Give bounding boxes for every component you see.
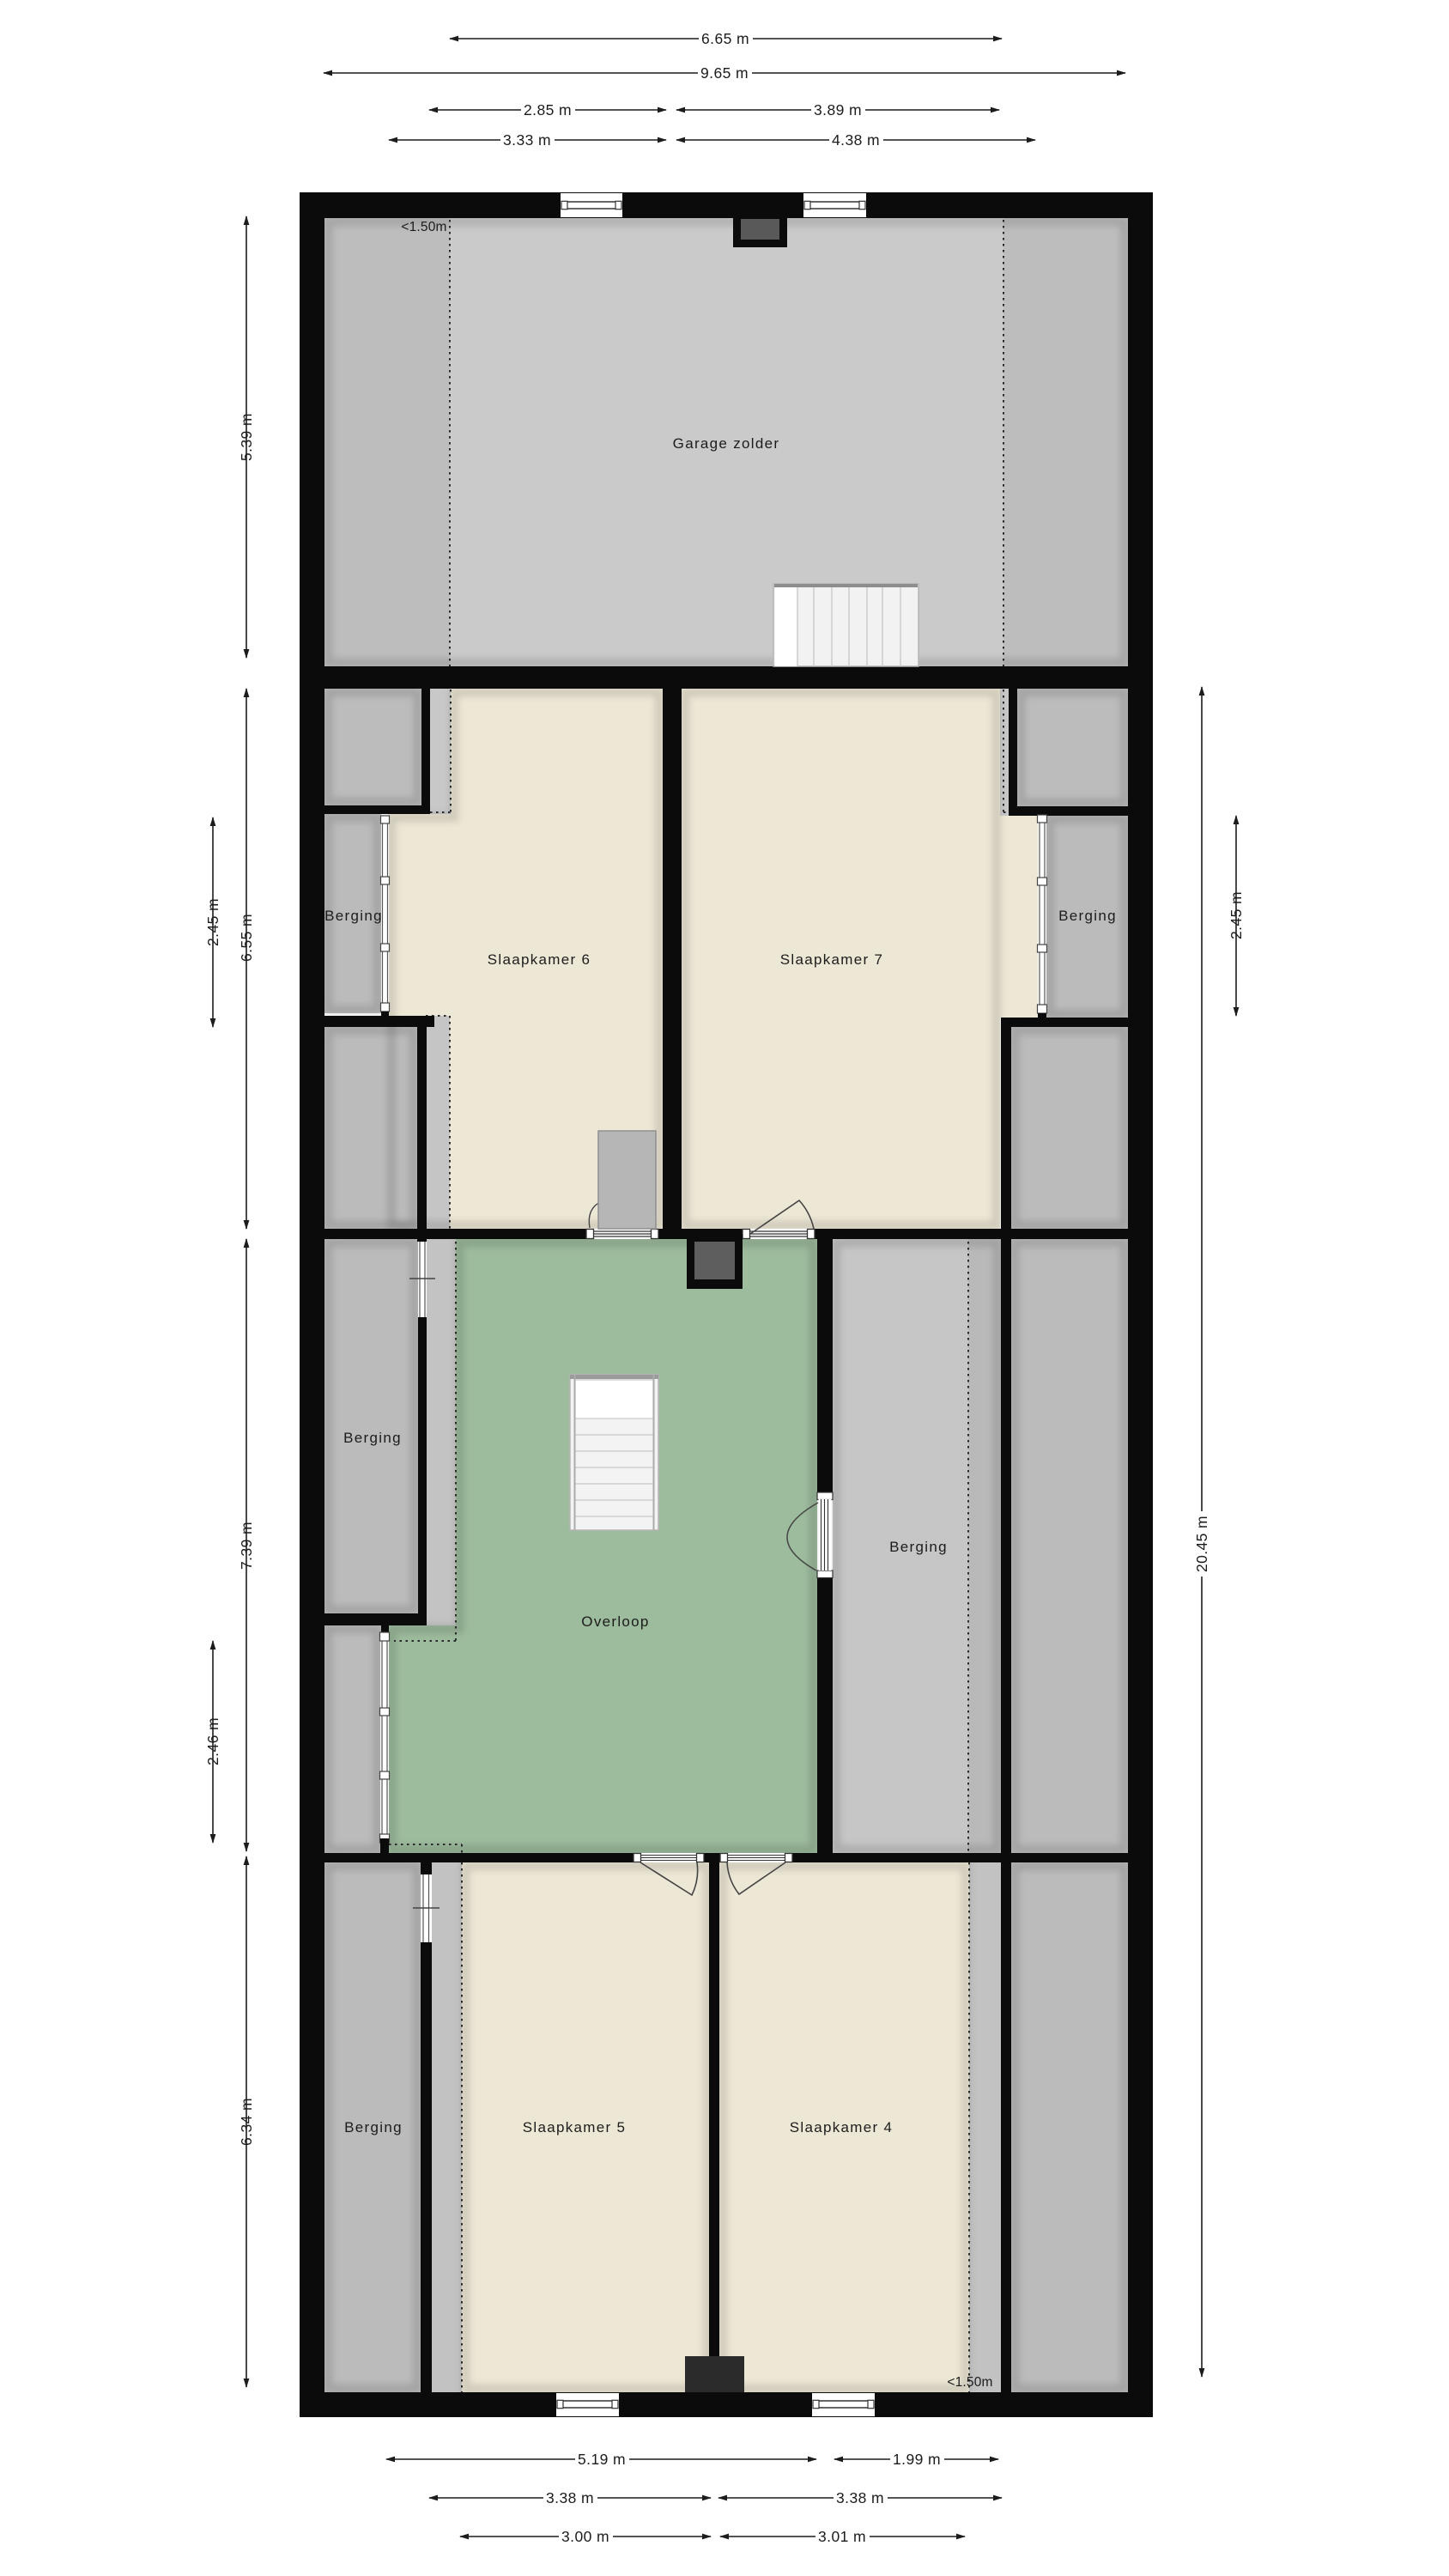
svg-text:Berging: Berging: [324, 908, 383, 924]
svg-text:6.34 m: 6.34 m: [238, 2098, 255, 2146]
svg-text:3.00 m: 3.00 m: [561, 2528, 609, 2545]
svg-text:7.39 m: 7.39 m: [238, 1522, 255, 1570]
svg-text:5.19 m: 5.19 m: [578, 2451, 626, 2468]
svg-text:<1.50m: <1.50m: [947, 2375, 992, 2390]
svg-text:6.65 m: 6.65 m: [701, 30, 749, 47]
svg-text:3.33 m: 3.33 m: [503, 131, 551, 149]
svg-text:Berging: Berging: [1058, 908, 1117, 924]
svg-text:Slaapkamer 7: Slaapkamer 7: [780, 951, 884, 968]
svg-text:3.38 m: 3.38 m: [546, 2489, 594, 2506]
svg-text:Slaapkamer 6: Slaapkamer 6: [488, 951, 591, 968]
svg-text:2.45 m: 2.45 m: [1228, 891, 1245, 939]
svg-text:Berging: Berging: [889, 1539, 948, 1555]
svg-text:2.85 m: 2.85 m: [524, 101, 572, 118]
svg-text:3.38 m: 3.38 m: [836, 2489, 884, 2506]
svg-text:Slaapkamer 4: Slaapkamer 4: [790, 2119, 894, 2136]
svg-text:9.65 m: 9.65 m: [700, 64, 749, 82]
svg-text:<1.50m: <1.50m: [401, 220, 446, 234]
svg-text:6.55 m: 6.55 m: [238, 914, 255, 962]
svg-text:3.01 m: 3.01 m: [818, 2528, 866, 2545]
svg-text:1.99 m: 1.99 m: [893, 2451, 941, 2468]
svg-text:4.38 m: 4.38 m: [832, 131, 880, 149]
svg-text:3.89 m: 3.89 m: [814, 101, 862, 118]
svg-text:2.45 m: 2.45 m: [204, 898, 221, 946]
svg-text:5.39 m: 5.39 m: [238, 413, 255, 461]
svg-text:Berging: Berging: [343, 1430, 402, 1446]
svg-text:Slaapkamer 5: Slaapkamer 5: [523, 2119, 627, 2136]
svg-text:Overloop: Overloop: [581, 1613, 649, 1630]
svg-text:Garage zolder: Garage zolder: [673, 435, 780, 452]
svg-text:20.45 m: 20.45 m: [1193, 1516, 1210, 1572]
svg-text:2.46 m: 2.46 m: [204, 1717, 221, 1765]
svg-text:Berging: Berging: [344, 2119, 403, 2136]
